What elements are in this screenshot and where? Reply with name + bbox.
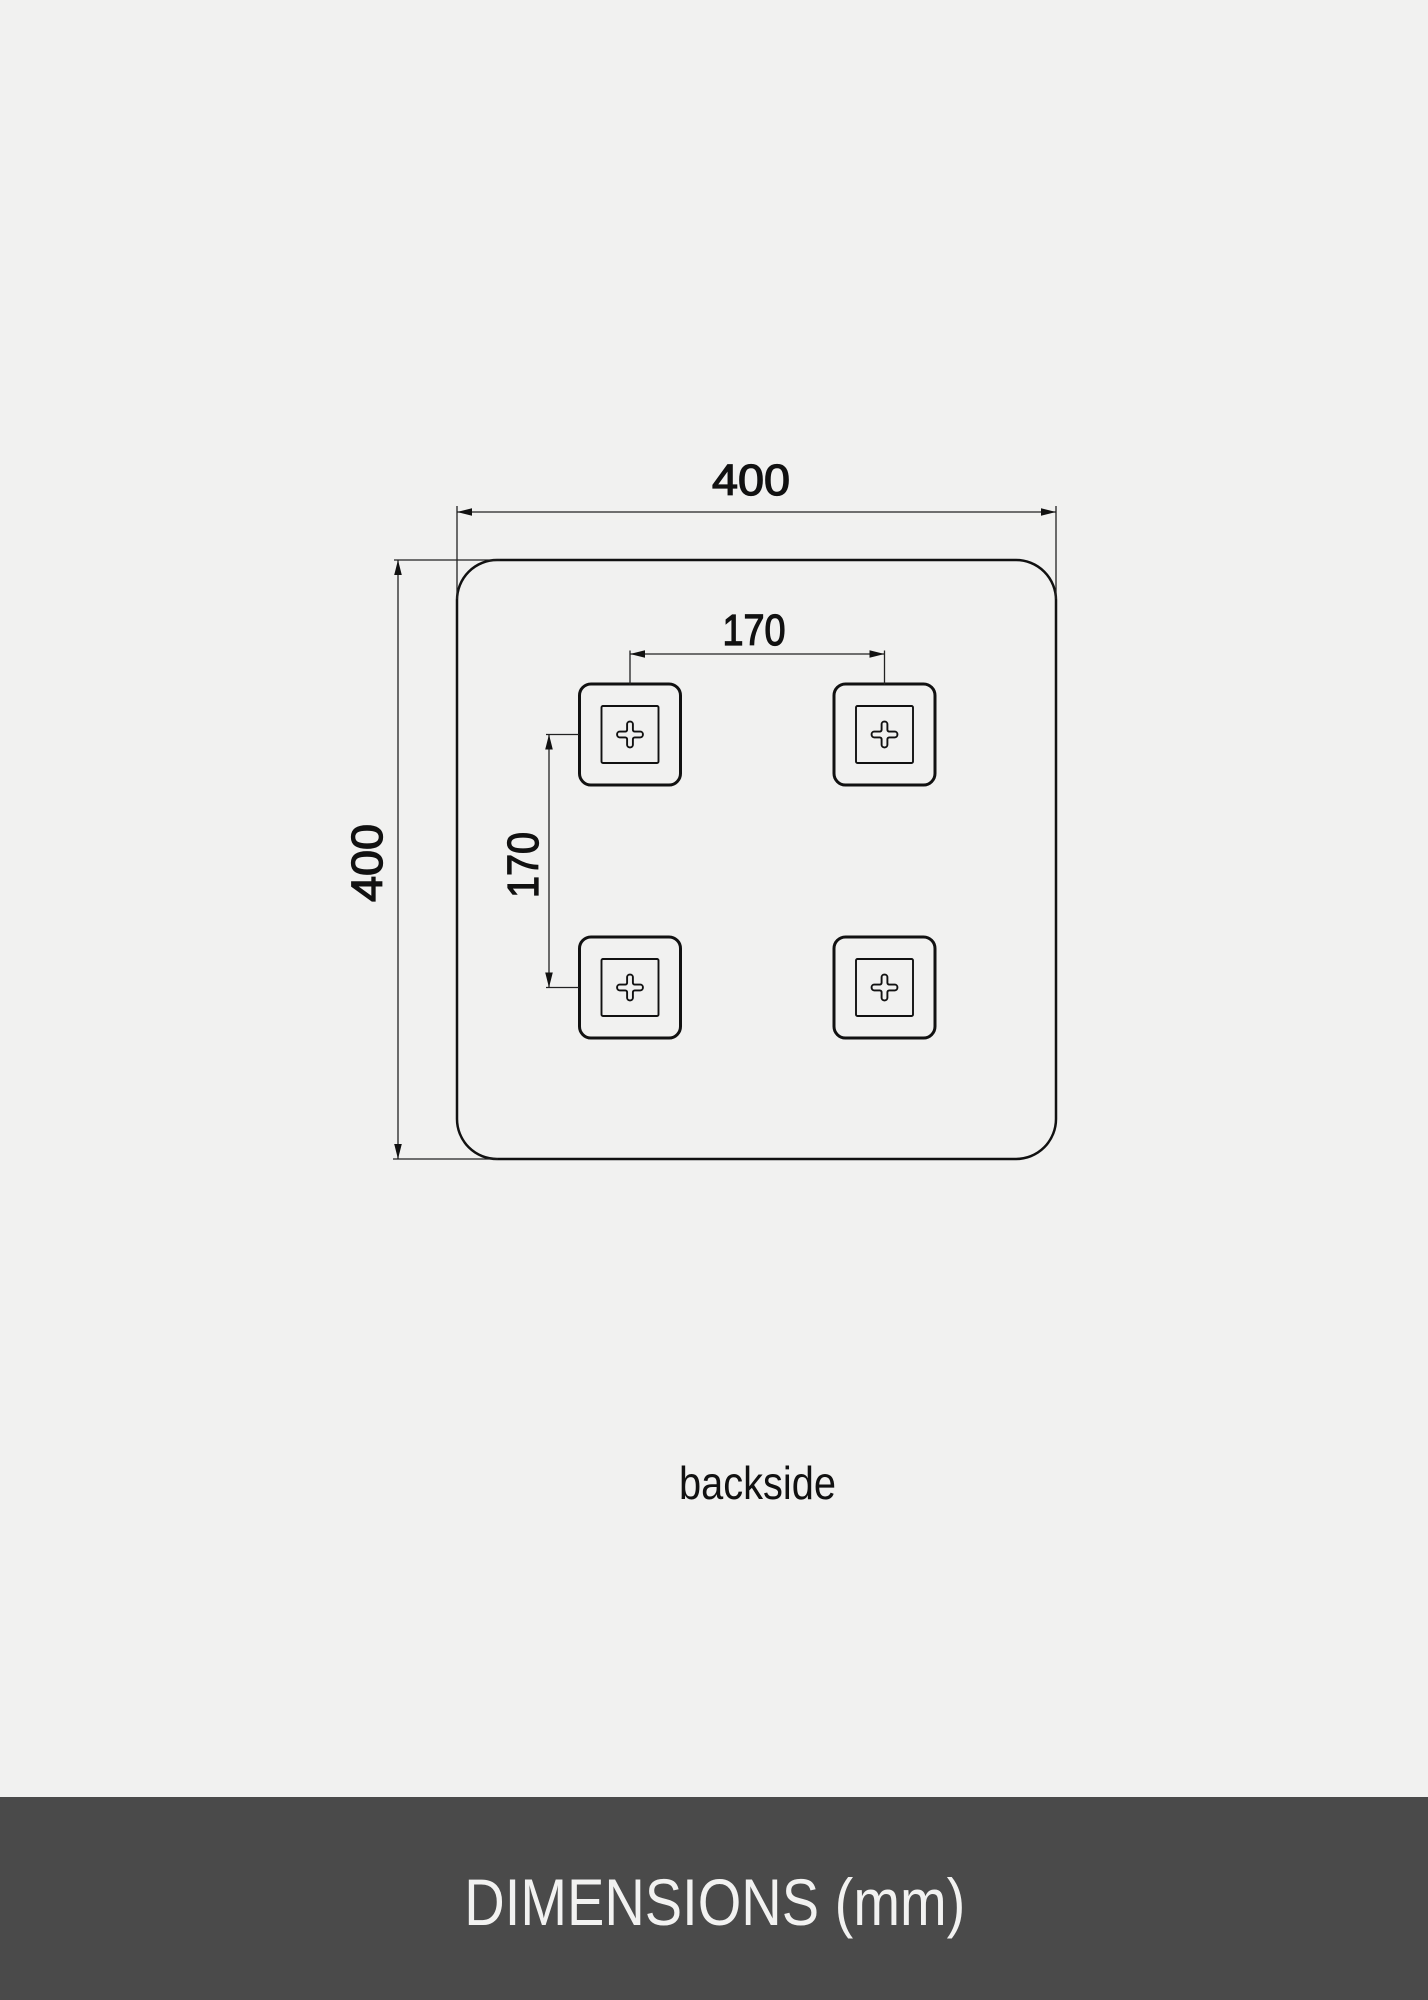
svg-text:170: 170 bbox=[499, 832, 548, 898]
svg-text:backside: backside bbox=[679, 1457, 836, 1509]
svg-text:170: 170 bbox=[723, 606, 786, 655]
svg-text:DIMENSIONS (mm): DIMENSIONS (mm) bbox=[464, 1865, 965, 1939]
svg-text:400: 400 bbox=[712, 456, 790, 505]
svg-text:400: 400 bbox=[343, 824, 392, 902]
